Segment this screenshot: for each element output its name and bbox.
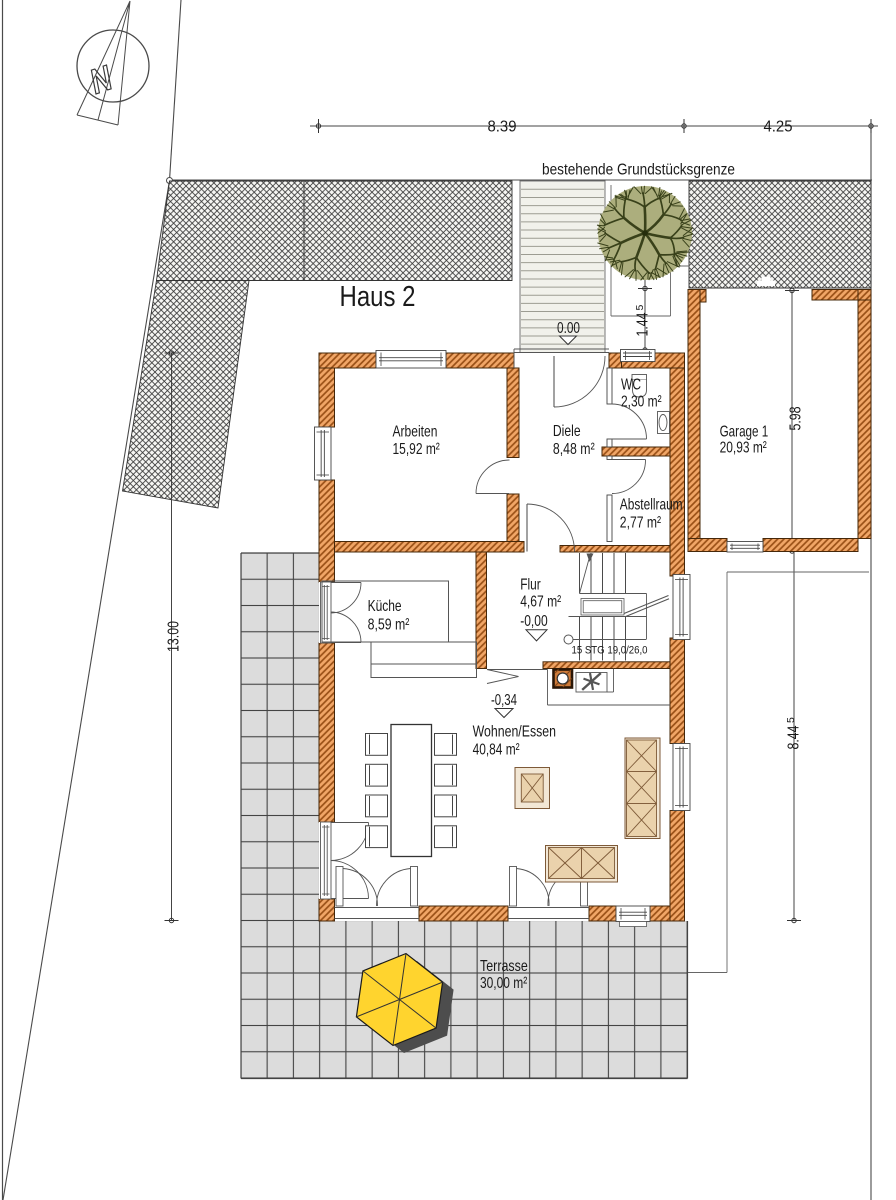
svg-text:1.44: 1.44: [635, 312, 652, 336]
svg-text:8.44: 8.44: [786, 725, 803, 749]
svg-text:13.00: 13.00: [166, 621, 183, 652]
svg-text:8,59 m²: 8,59 m²: [368, 617, 410, 634]
svg-text:8,48 m²: 8,48 m²: [553, 441, 595, 458]
svg-text:Arbeiten: Arbeiten: [393, 423, 438, 440]
svg-text:Terrasse: Terrasse: [480, 958, 528, 975]
svg-text:30,00 m²: 30,00 m²: [480, 975, 528, 992]
svg-text:2,77 m²: 2,77 m²: [620, 515, 662, 532]
svg-text:Wohnen/Essen: Wohnen/Essen: [473, 724, 556, 741]
svg-text:0.00: 0.00: [557, 320, 580, 337]
svg-text:15 STG 19,0/26,0: 15 STG 19,0/26,0: [572, 645, 648, 657]
svg-text:5.98: 5.98: [788, 406, 805, 430]
svg-text:4,67 m²: 4,67 m²: [520, 593, 562, 610]
svg-text:15,92 m²: 15,92 m²: [393, 441, 441, 458]
svg-text:-0,34: -0,34: [491, 692, 517, 709]
svg-text:20,93 m²: 20,93 m²: [720, 440, 768, 457]
svg-text:Haus 2: Haus 2: [340, 281, 416, 313]
svg-text:Garage 1: Garage 1: [720, 424, 769, 441]
svg-text:-0,00: -0,00: [520, 613, 548, 630]
svg-text:2,30 m²: 2,30 m²: [621, 394, 662, 411]
svg-text:Diele: Diele: [553, 423, 581, 440]
svg-text:4.25: 4.25: [764, 119, 793, 136]
svg-text:5: 5: [785, 717, 797, 723]
svg-text:Küche: Küche: [368, 598, 402, 615]
svg-text:bestehende Grundstücksgrenze: bestehende Grundstücksgrenze: [542, 162, 735, 179]
svg-text:Flur: Flur: [520, 576, 541, 593]
svg-text:Abstellraum: Abstellraum: [620, 496, 683, 513]
svg-text:WC: WC: [621, 377, 641, 394]
svg-text:8.39: 8.39: [488, 119, 517, 136]
svg-text:40,84 m²: 40,84 m²: [473, 742, 521, 759]
svg-text:5: 5: [634, 305, 646, 311]
